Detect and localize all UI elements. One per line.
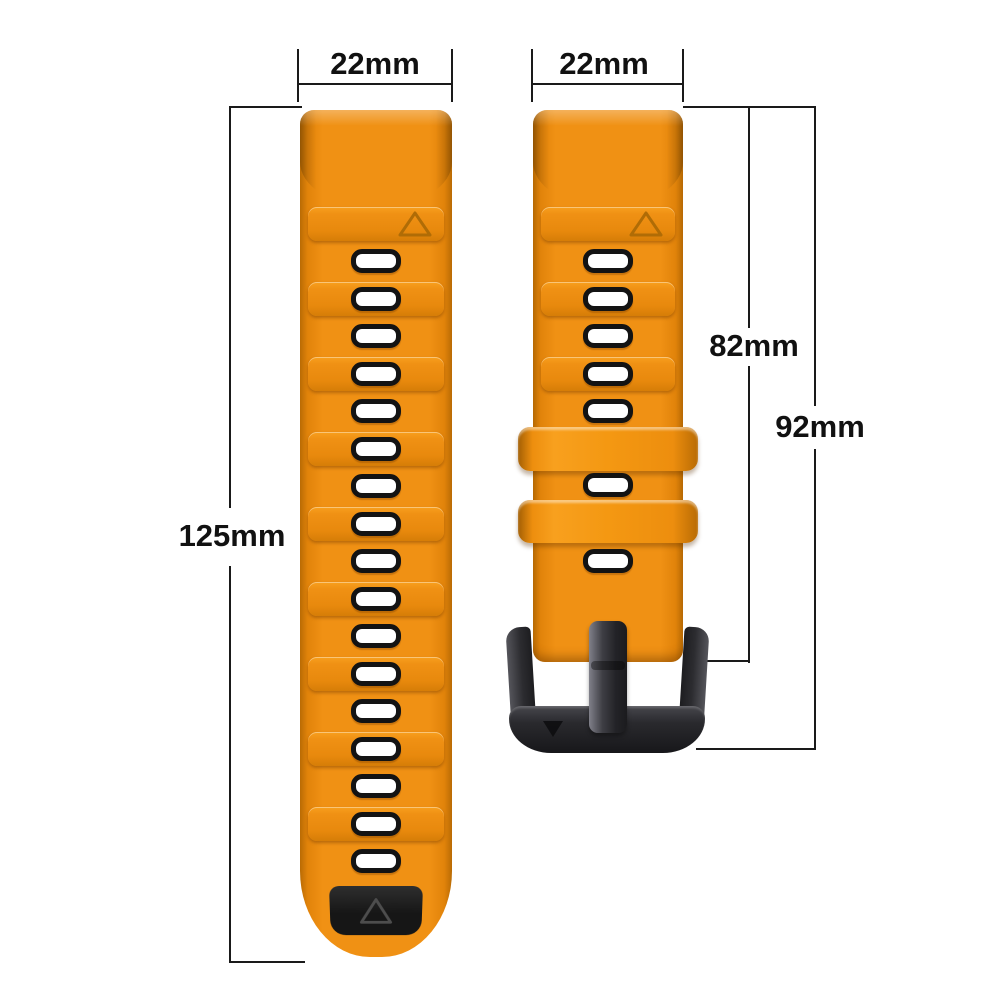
watch-band-dimension-diagram: 22mm 22mm 125mm 82mm 92mm xyxy=(0,0,1000,1000)
strap-short xyxy=(533,110,683,662)
strap-hole xyxy=(351,437,401,461)
strap-hole xyxy=(351,699,401,723)
dimension-label-long-strap-length: 125mm xyxy=(167,519,297,553)
dimension-line xyxy=(814,106,816,406)
buckle-prong-ridge xyxy=(591,661,625,670)
strap-hole xyxy=(583,362,633,386)
strap-hole xyxy=(351,549,401,573)
dimension-tick xyxy=(297,49,299,102)
dimension-line xyxy=(814,449,816,750)
strap-lug-end xyxy=(533,110,683,206)
dimension-tick xyxy=(682,49,684,102)
strap-hole xyxy=(351,287,401,311)
band-triangle-marker-icon xyxy=(397,210,433,238)
dimension-tick xyxy=(531,49,533,102)
strap-hole xyxy=(583,399,633,423)
strap-hole xyxy=(583,287,633,311)
buckle-triangle-marker-icon xyxy=(543,721,563,737)
tip-triangle-icon xyxy=(357,896,395,926)
dimension-line xyxy=(229,566,231,962)
dimension-line xyxy=(229,106,231,508)
band-triangle-marker-icon xyxy=(628,210,664,238)
dimension-line xyxy=(702,660,750,662)
keeper-loop xyxy=(518,500,698,543)
ridge-band xyxy=(308,207,444,241)
strap-hole xyxy=(583,249,633,273)
strap-hole xyxy=(583,549,633,573)
strap-hole xyxy=(351,362,401,386)
strap-long xyxy=(300,110,452,957)
strap-hole xyxy=(583,324,633,348)
strap-hole xyxy=(351,324,401,348)
strap-hole xyxy=(351,737,401,761)
strap-hole xyxy=(583,473,633,497)
strap-hole xyxy=(351,774,401,798)
keeper-loop xyxy=(518,427,698,471)
strap-hole xyxy=(351,512,401,536)
ridge-band xyxy=(541,207,675,241)
strap-hole xyxy=(351,849,401,873)
dimension-line xyxy=(532,83,684,85)
strap-hole xyxy=(351,474,401,498)
dimension-tick xyxy=(451,49,453,102)
dimension-label-short-strap-total: 92mm xyxy=(765,410,875,444)
dimension-line xyxy=(230,106,302,108)
dimension-line xyxy=(748,366,750,663)
strap-hole xyxy=(351,249,401,273)
strap-hole xyxy=(351,662,401,686)
dimension-line xyxy=(696,748,816,750)
dimension-label-short-strap-to-frame: 82mm xyxy=(699,329,809,363)
strap-lug-end xyxy=(300,110,452,206)
strap-hole xyxy=(351,624,401,648)
buckle-prong xyxy=(589,621,627,733)
dimension-label-short-strap-width: 22mm xyxy=(549,47,659,81)
strap-tip-black-panel xyxy=(329,886,423,935)
strap-hole xyxy=(351,399,401,423)
dimension-line xyxy=(298,83,453,85)
strap-hole xyxy=(351,812,401,836)
dimension-line xyxy=(229,961,305,963)
strap-hole xyxy=(351,587,401,611)
dimension-line xyxy=(748,106,750,328)
dimension-label-long-strap-width: 22mm xyxy=(320,47,430,81)
